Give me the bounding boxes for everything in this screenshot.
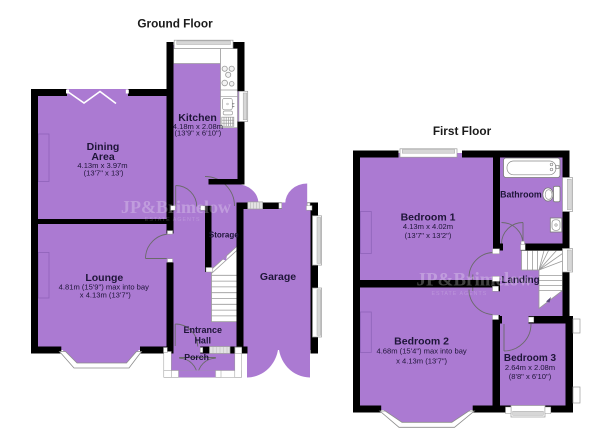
svg-text:(13'9" x 6'10"): (13'9" x 6'10") <box>175 129 222 138</box>
svg-text:Garage: Garage <box>260 271 296 283</box>
svg-text:(13'7" x 13'): (13'7" x 13') <box>84 169 124 178</box>
svg-text:JP&Brimelow: JP&Brimelow <box>416 270 532 291</box>
svg-text:(8'8" x 6'10"): (8'8" x 6'10") <box>509 372 552 381</box>
svg-text:Ground Floor: Ground Floor <box>137 17 213 31</box>
svg-text:First Floor: First Floor <box>433 124 492 138</box>
svg-text:Bedroom 2: Bedroom 2 <box>394 335 449 347</box>
svg-text:Porch: Porch <box>184 352 209 362</box>
svg-text:4.68m (15'4") max into bay: 4.68m (15'4") max into bay <box>376 347 466 356</box>
svg-text:ESTATE AGENTS: ESTATE AGENTS <box>145 217 201 223</box>
svg-text:JP&Brimelow: JP&Brimelow <box>121 197 231 217</box>
svg-text:Hall: Hall <box>194 336 211 346</box>
svg-text:Bathroom: Bathroom <box>500 190 542 200</box>
svg-text:Storage: Storage <box>209 230 239 239</box>
svg-text:4.13m x 4.02m: 4.13m x 4.02m <box>403 222 453 231</box>
svg-text:x 4.13m (13'7"): x 4.13m (13'7") <box>396 357 447 366</box>
svg-text:2.64m x 2.08m: 2.64m x 2.08m <box>505 363 555 372</box>
svg-text:ESTATE AGENTS: ESTATE AGENTS <box>432 291 488 297</box>
svg-text:x 4.13m (13'7"): x 4.13m (13'7") <box>80 291 131 300</box>
svg-text:Entrance: Entrance <box>183 325 222 335</box>
svg-text:(13'7" x 13'2"): (13'7" x 13'2") <box>405 231 452 240</box>
